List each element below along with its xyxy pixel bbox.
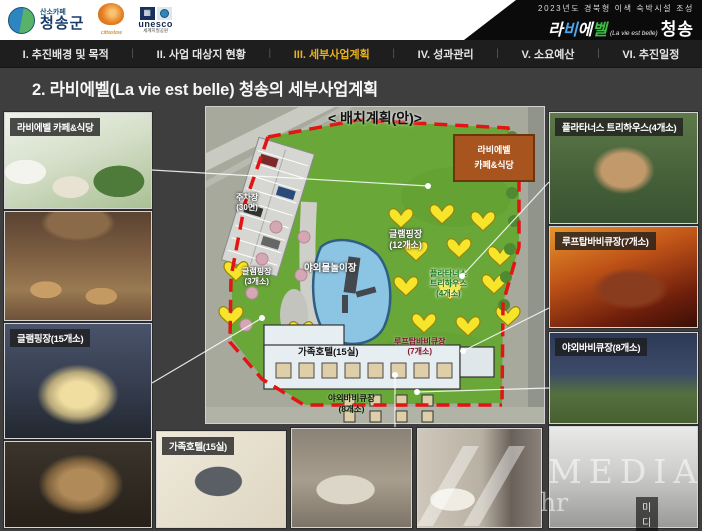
- map-label-hotel: 가족호텔(15실): [298, 347, 359, 359]
- snail-icon: [98, 3, 124, 25]
- cheongsong-logo: 산소카페 청송군: [8, 7, 84, 34]
- photo-glamping-dome: 글램핑장(15개소): [4, 323, 152, 439]
- site-plan-map: < 배치계획(안)> 주차장(30면) 라비에벨카페&식당 글램핑장(12개소)…: [205, 106, 545, 424]
- nav-tab-site-status[interactable]: II. 사업 대상지 현황: [157, 46, 246, 62]
- photo-label-glamping: 글램핑장(15개소): [10, 329, 90, 347]
- header-bar: 산소카페 청송군 cittaslow ▦ unesco 세계지질공원 2023년…: [0, 0, 702, 40]
- photo-label-cafe: 라비에벨 카페&식당: [10, 118, 100, 136]
- nav-tab-budget[interactable]: V. 소요예산: [522, 46, 575, 62]
- nav-tab-schedule[interactable]: VI. 추진일정: [622, 46, 679, 62]
- brand-char-3: 에: [578, 23, 593, 39]
- photo-treehouse: 플라타너스 트리하우스(4개소): [549, 112, 698, 224]
- cittaslow-logo: cittaslow: [98, 3, 124, 37]
- photo-hotel-floorplan: 가족호텔(15실): [156, 431, 286, 528]
- logo-group: 산소카페 청송군 cittaslow ▦ unesco 세계지질공원: [8, 0, 173, 40]
- nav-tab-detail-plan[interactable]: III. 세부사업계획: [294, 46, 370, 62]
- project-banner: 2023년도 경북형 이색 숙박시설 조성 라비에벨 (La vie est b…: [464, 0, 702, 40]
- map-label-outdoor-bbq: 야외바비큐장(8개소): [328, 393, 375, 414]
- photo-hotel-bedroom: [291, 428, 412, 528]
- unesco-logo-sub: 세계지질공원: [143, 29, 168, 34]
- map-label-cafe: 라비에벨카페&식당: [453, 134, 535, 182]
- slide-canvas: 산소카페 청송군 cittaslow ▦ unesco 세계지질공원 2023년…: [0, 0, 702, 531]
- brand-char-2: 비: [563, 23, 578, 39]
- photo-label-treehouse: 플라타너스 트리하우스(4개소): [555, 118, 683, 136]
- banner-subtitle: 2023년도 경북형 이색 숙박시설 조성: [520, 3, 694, 14]
- map-label-glamping-3: 글램핑장(3개소): [242, 267, 271, 287]
- nav-separator: |: [268, 48, 271, 59]
- brand-region: 청송: [661, 15, 694, 40]
- map-title: < 배치계획(안)>: [206, 110, 544, 128]
- nav-separator: |: [597, 48, 600, 59]
- nav-separator: |: [392, 48, 395, 59]
- photo-glamping-dome-aerial: [4, 441, 152, 528]
- section-nav: I. 추진배경 및 목적 | II. 사업 대상지 현황 | III. 세부사업…: [0, 40, 702, 68]
- photo-label-outdoor-bbq: 야외바비큐장(8개소): [555, 338, 647, 356]
- photo-cafe-interior: 라비에벨 카페&식당: [4, 112, 152, 209]
- brand-char-4: 벨: [592, 23, 607, 39]
- unesco-temple-icon: ▦: [140, 7, 155, 20]
- map-label-pool: 야외물놀이장: [304, 263, 356, 275]
- page-title: 2. 라비에벨(La vie est belle) 청송의 세부사업계획: [32, 76, 378, 100]
- nav-separator: |: [496, 48, 499, 59]
- map-label-parking: 주차장(30면): [236, 193, 258, 213]
- map-label-glamping-12: 글램핑장(12개소): [389, 229, 422, 252]
- photo-label-rooftop-bbq: 루프탑바비큐장(7개소): [555, 232, 656, 250]
- photo-outdoor-bbq: 야외바비큐장(8개소): [549, 332, 698, 424]
- photo-hotel-livingroom: [417, 428, 542, 528]
- photo-rooftop-bbq-grill: 루프탑바비큐장(7개소): [549, 226, 698, 328]
- map-label-rooftop-bbq: 루프탑바비큐장(7개소): [394, 337, 446, 357]
- unesco-logo: ▦ unesco 세계지질공원: [138, 7, 173, 34]
- banner-brand: 라비에벨 (La vie est belle) 청송: [520, 15, 694, 40]
- photo-restaurant-interior: [4, 211, 152, 321]
- brand-char-1: 라: [548, 23, 563, 39]
- nav-separator: |: [131, 48, 134, 59]
- nav-tab-background-purpose[interactable]: I. 추진배경 및 목적: [23, 46, 109, 62]
- photo-hotel-bathroom: [549, 426, 698, 528]
- photo-label-family-hotel: 가족호텔(15실): [162, 437, 234, 455]
- unesco-globe-icon: [157, 7, 172, 20]
- map-label-treehouse: 플라타너스트리하우스(4개소): [430, 269, 467, 299]
- cheongsong-emblem-icon: [8, 7, 35, 34]
- cheongsong-logo-name: 청송군: [40, 16, 84, 31]
- nav-tab-performance[interactable]: IV. 성과관리: [418, 46, 474, 62]
- brand-subtitle: (La vie est belle): [610, 30, 658, 37]
- cittaslow-logo-label: cittaslow: [101, 31, 122, 37]
